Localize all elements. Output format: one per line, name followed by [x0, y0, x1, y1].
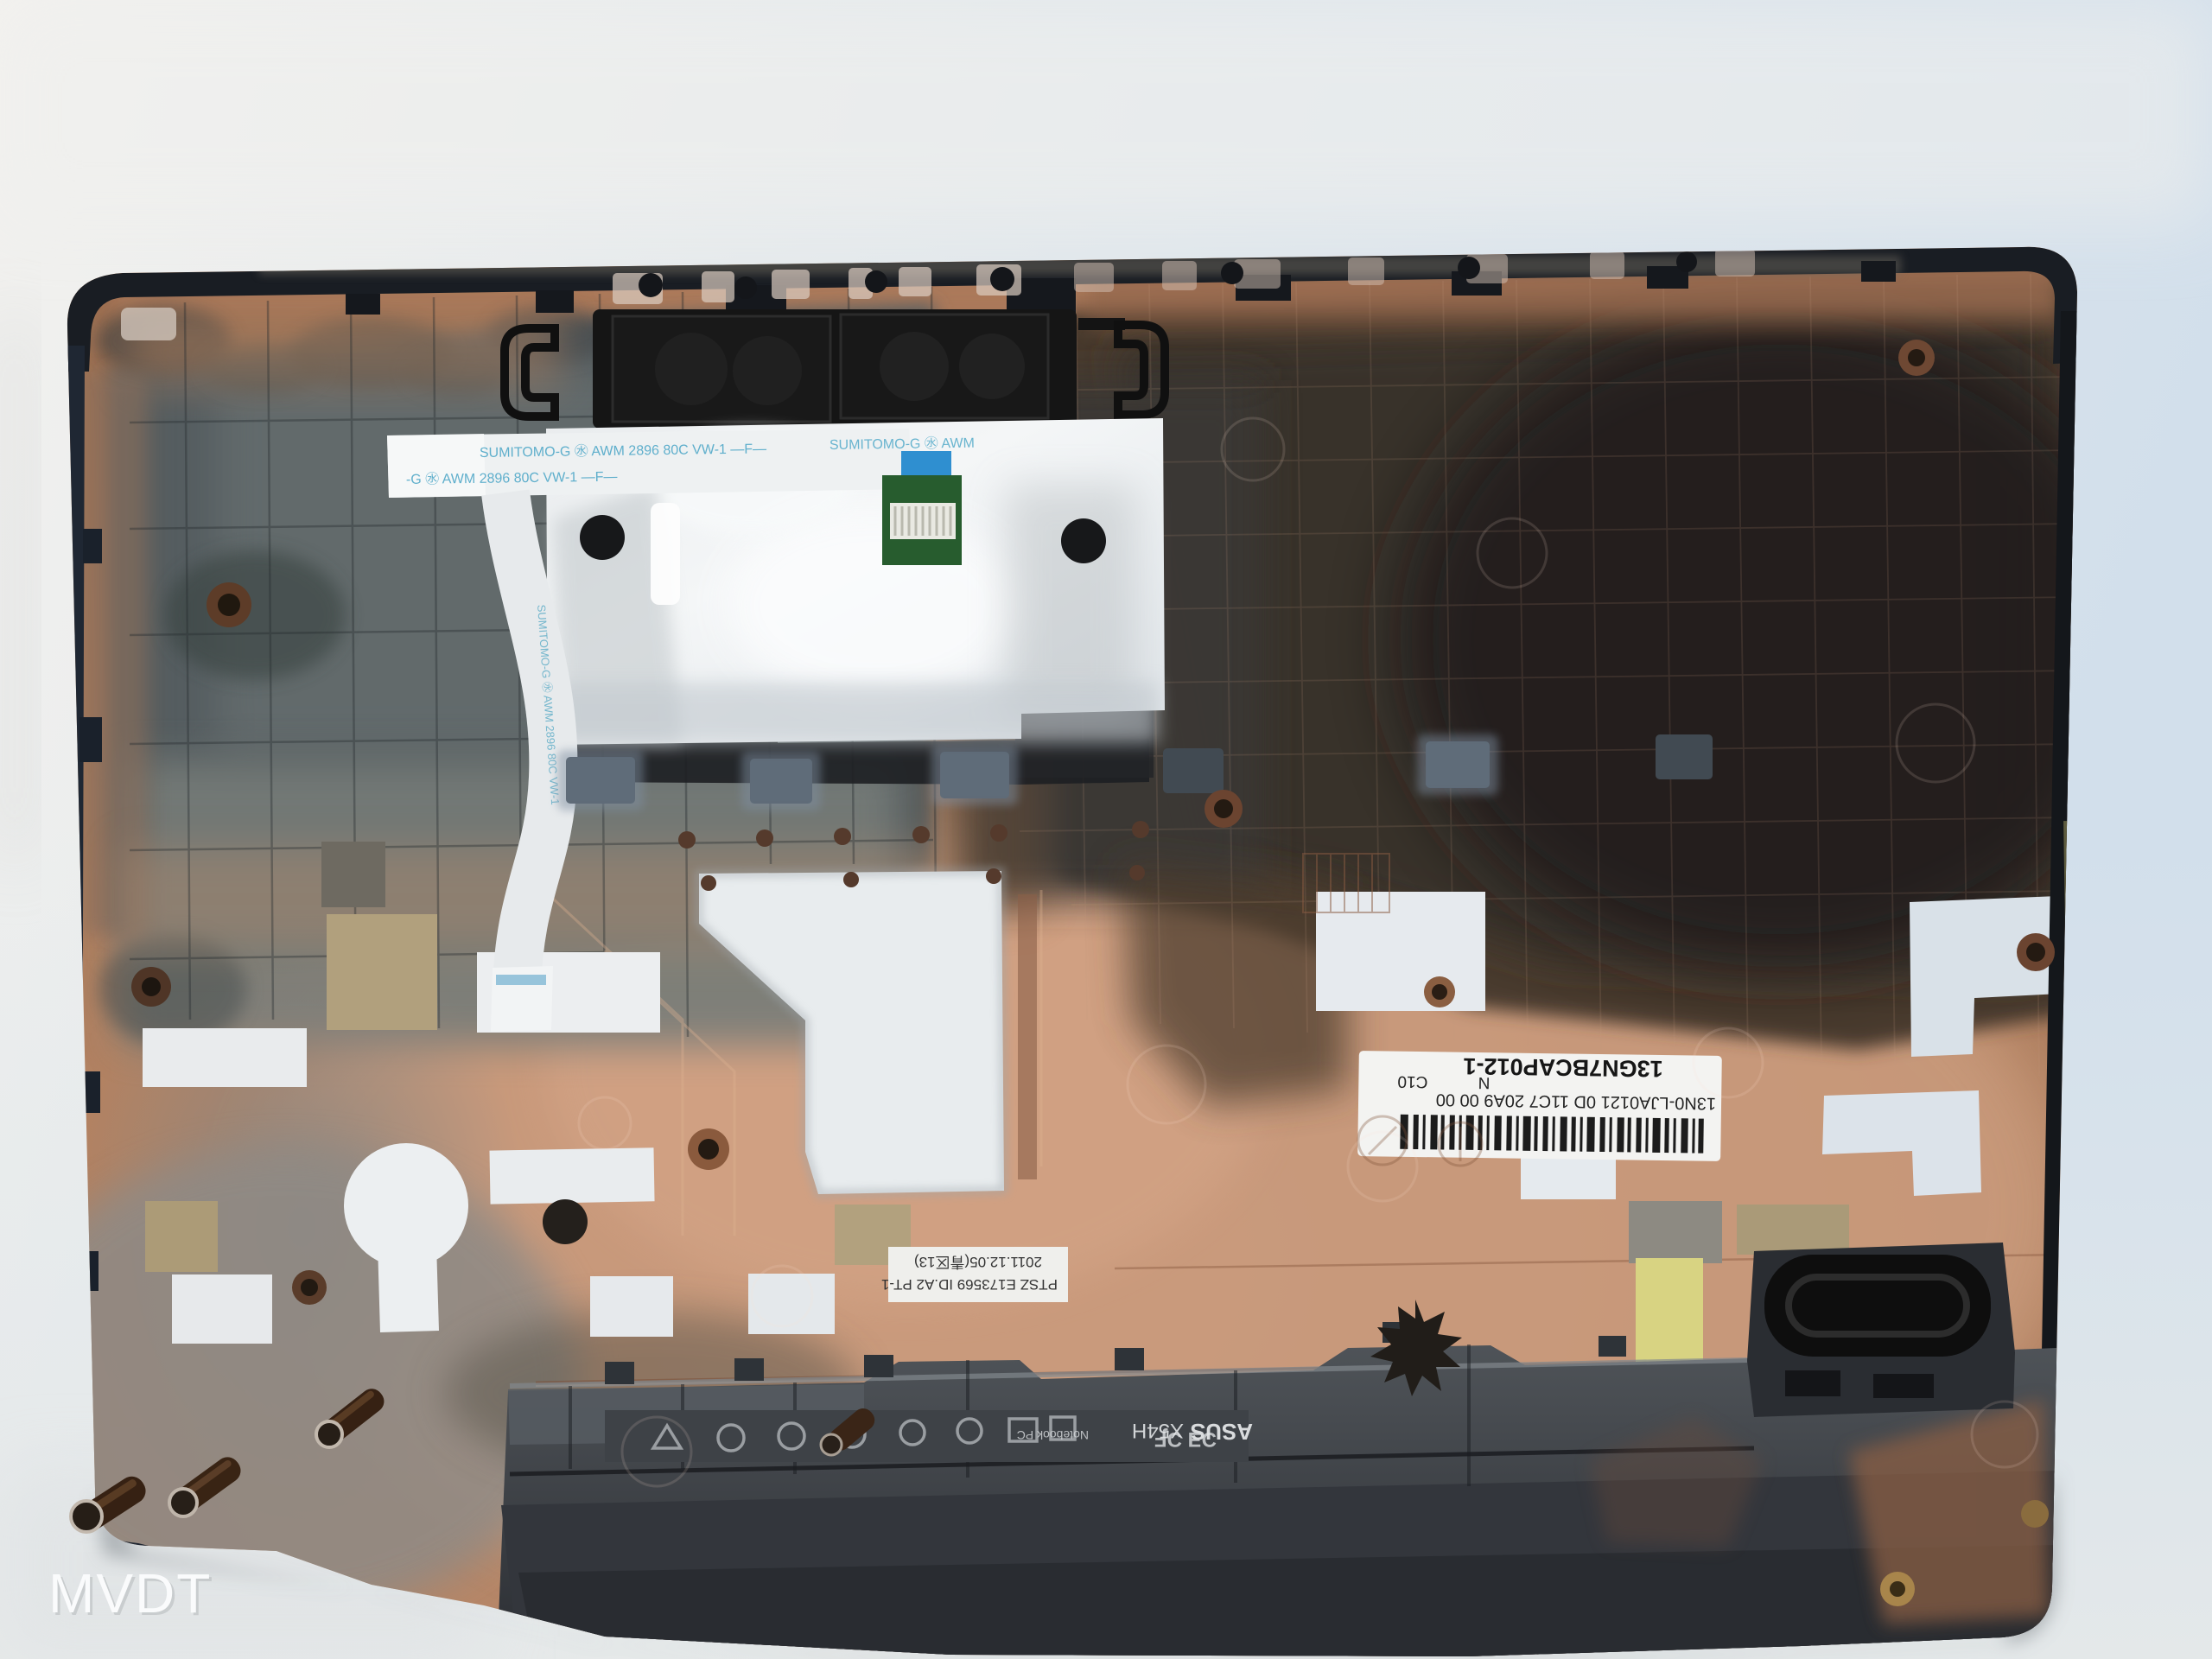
svg-text:X54H: X54H [1132, 1419, 1184, 1442]
svg-text:-G ㊌ AWM 2896 80C VW-1 —F—: -G ㊌ AWM 2896 80C VW-1 —F— [406, 469, 618, 487]
svg-text:13N0-LJA0121 0D 11C7 20A9 00 0: 13N0-LJA0121 0D 11C7 20A9 00 00 [1436, 1090, 1717, 1113]
svg-text:C10: C10 [1397, 1072, 1427, 1090]
svg-text:2011.12.05(青区13): 2011.12.05(青区13) [914, 1254, 1042, 1270]
svg-text:13GN7BCAP012-1: 13GN7BCAP012-1 [1463, 1053, 1663, 1082]
svg-text:MVDT: MVDT [48, 1562, 212, 1624]
svg-text:SUMITOMO-G ㊌ AWM: SUMITOMO-G ㊌ AWM [829, 435, 975, 453]
svg-text:ASUS: ASUS [1191, 1419, 1253, 1445]
svg-text:Notebook PC: Notebook PC [1017, 1428, 1089, 1442]
svg-text:PTSZ E173569 ID.A2 PT-1: PTSZ E173569 ID.A2 PT-1 [881, 1276, 1058, 1293]
